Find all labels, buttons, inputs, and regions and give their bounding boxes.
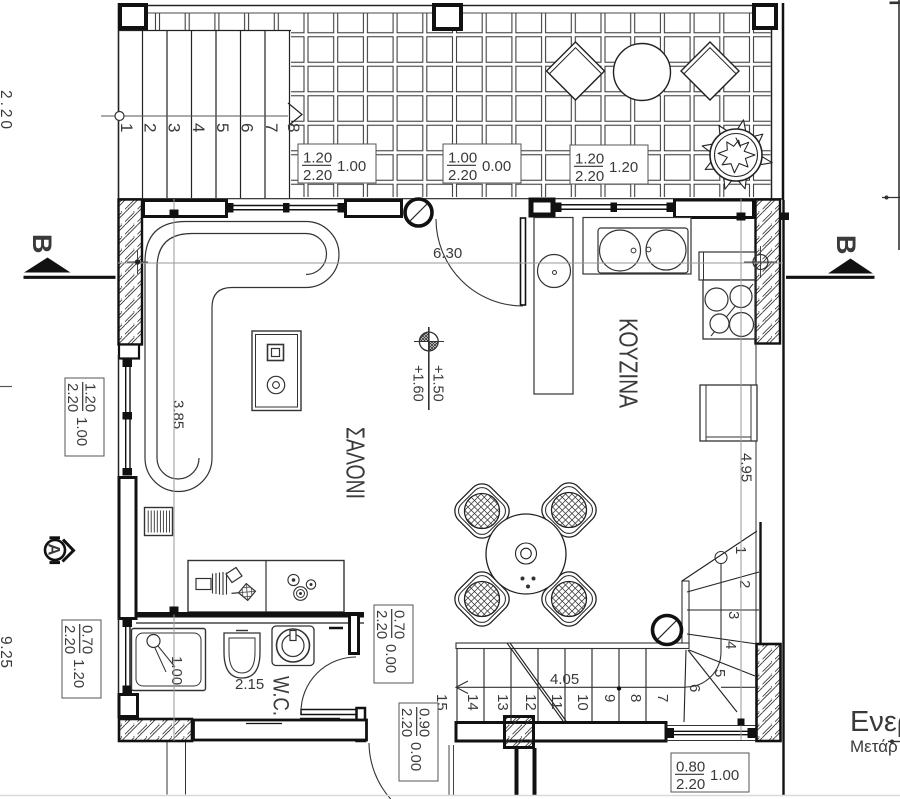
svg-text:1.00: 1.00: [710, 767, 739, 784]
svg-text:2.20: 2.20: [303, 167, 332, 184]
svg-text:14: 14: [464, 694, 481, 711]
svg-text:4: 4: [722, 641, 739, 649]
svg-text:0.80: 0.80: [676, 759, 705, 776]
svg-text:5: 5: [213, 123, 232, 132]
svg-text:7: 7: [654, 694, 671, 702]
svg-text:2.15: 2.15: [235, 676, 264, 693]
svg-text:8: 8: [284, 123, 303, 132]
svg-text:13: 13: [494, 694, 511, 711]
svg-text:1.20: 1.20: [70, 659, 87, 688]
svg-text:9: 9: [601, 694, 618, 702]
svg-text:2.20: 2.20: [575, 168, 604, 185]
svg-text:1.00: 1.00: [448, 150, 477, 167]
svg-text:9.25: 9.25: [0, 636, 14, 668]
svg-text:ΣΑΛΟΝΙ: ΣΑΛΟΝΙ: [341, 427, 371, 499]
svg-text:4.05: 4.05: [550, 671, 579, 688]
svg-text:2.20: 2.20: [61, 625, 78, 654]
svg-text:1.20: 1.20: [575, 151, 604, 168]
svg-text:2.20: 2.20: [448, 167, 477, 184]
svg-text:2.20: 2.20: [398, 708, 415, 737]
svg-text:Ενεργ: Ενεργ: [850, 706, 900, 738]
svg-text:1.20: 1.20: [82, 383, 99, 412]
svg-text:7: 7: [262, 123, 281, 132]
svg-text:4.95: 4.95: [738, 453, 755, 482]
svg-text:2: 2: [141, 123, 160, 132]
svg-text:3.85: 3.85: [170, 400, 187, 429]
svg-text:5: 5: [711, 669, 728, 677]
svg-text:0.90: 0.90: [416, 708, 433, 737]
svg-text:4: 4: [189, 123, 208, 132]
svg-text:0.00: 0.00: [382, 644, 399, 673]
svg-text:+1.50: +1.50: [430, 365, 446, 402]
svg-text:2: 2: [736, 580, 753, 588]
svg-text:2.20: 2.20: [0, 90, 14, 129]
svg-text:6: 6: [238, 123, 257, 132]
svg-text:W.C.: W.C.: [269, 676, 294, 716]
svg-text:1.00: 1.00: [73, 417, 90, 446]
svg-text:3: 3: [725, 611, 742, 619]
svg-text:1.00: 1.00: [168, 656, 185, 685]
svg-text:2.20: 2.20: [373, 610, 390, 639]
svg-text:A: A: [45, 544, 63, 556]
svg-text:1.20: 1.20: [609, 159, 638, 176]
svg-text:6.30: 6.30: [433, 245, 462, 262]
svg-text:11: 11: [548, 694, 565, 710]
svg-text:0.00: 0.00: [407, 742, 424, 771]
svg-text:1.20: 1.20: [303, 150, 332, 167]
svg-text:0.70: 0.70: [391, 610, 408, 639]
svg-text:6: 6: [686, 684, 703, 692]
svg-text:8: 8: [627, 694, 644, 702]
svg-text:2.20: 2.20: [676, 776, 705, 793]
svg-text:0.70: 0.70: [79, 625, 96, 654]
svg-text:Μετάρ: Μετάρ: [850, 737, 898, 756]
svg-text:1.00: 1.00: [337, 158, 366, 175]
svg-text:1: 1: [117, 123, 136, 132]
svg-text:+1.60: +1.60: [410, 365, 426, 402]
svg-text:0.00: 0.00: [482, 158, 511, 175]
svg-text:B: B: [831, 235, 861, 255]
svg-text:10: 10: [574, 694, 591, 711]
svg-text:3: 3: [165, 123, 184, 132]
svg-text:B: B: [27, 234, 57, 254]
svg-text:2.20: 2.20: [64, 383, 81, 412]
svg-text:ΚΟΥΖΙΝΑ: ΚΟΥΖΙΝΑ: [614, 318, 644, 409]
svg-text:12: 12: [522, 694, 539, 711]
